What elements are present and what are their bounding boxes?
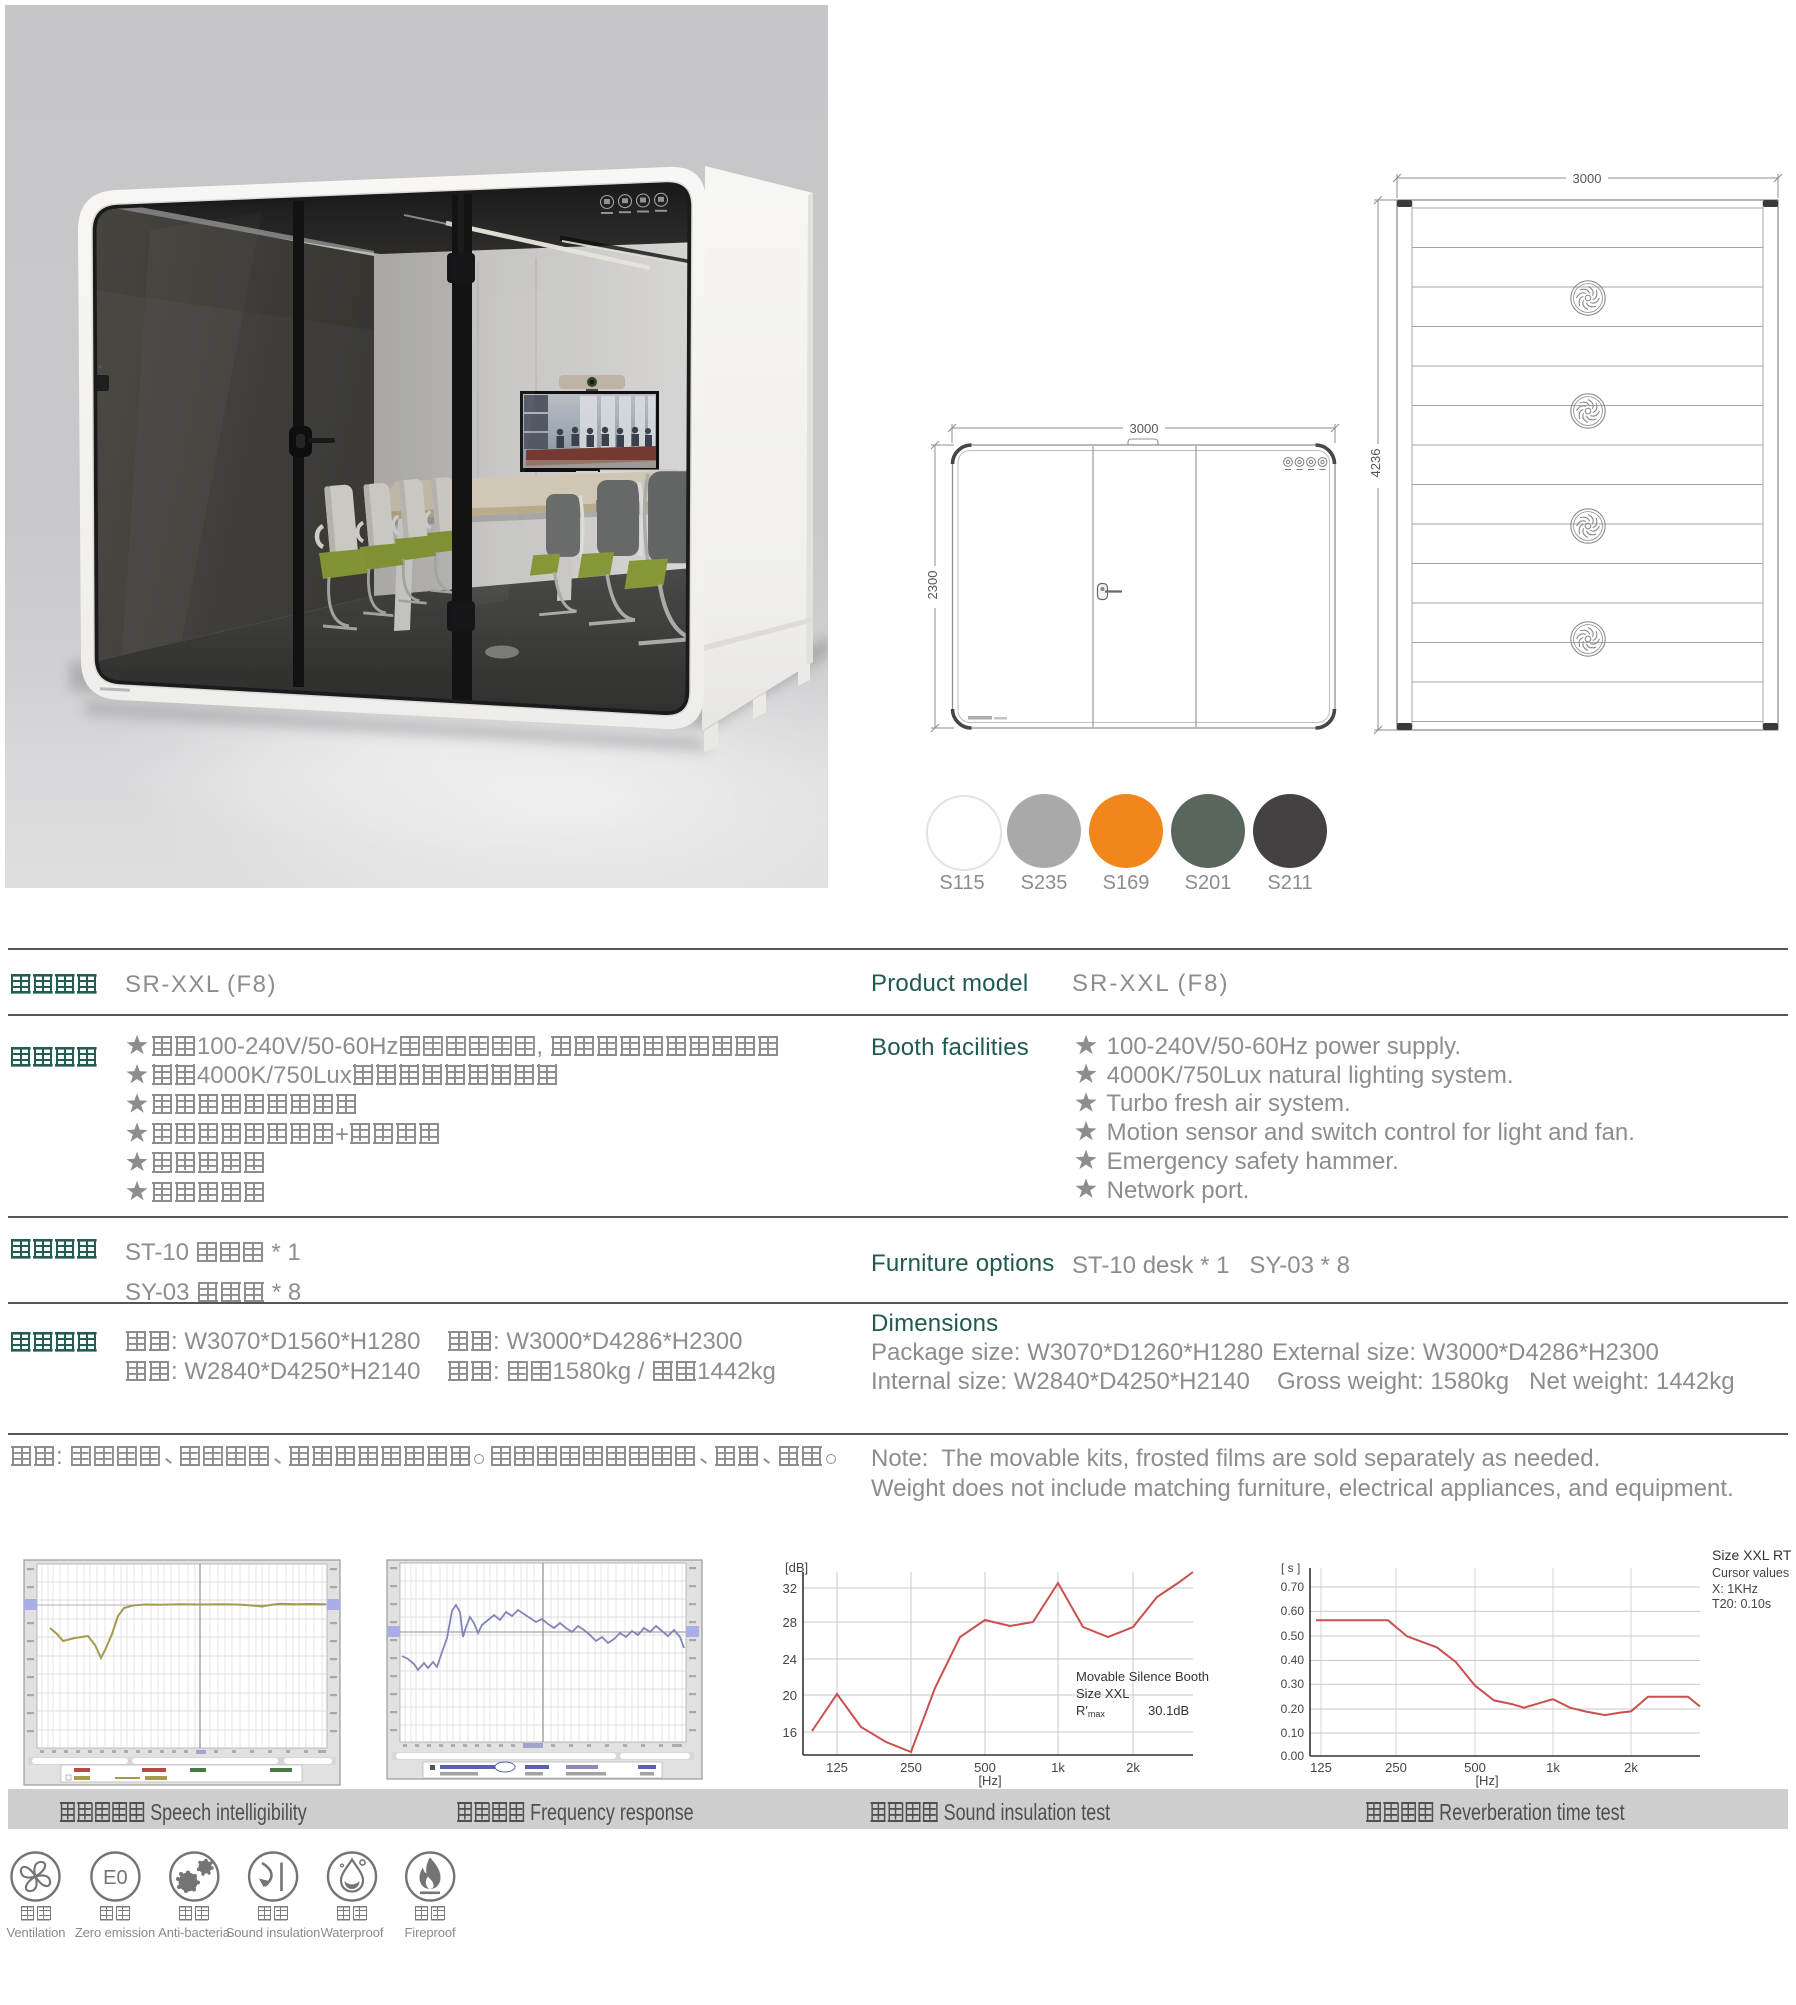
svg-text:4236: 4236 — [1368, 449, 1383, 478]
svg-text:0.70: 0.70 — [1281, 1580, 1305, 1594]
svg-text:125: 125 — [1310, 1760, 1332, 1775]
svg-text:Movable Silence Booth: Movable Silence Booth — [1076, 1669, 1209, 1684]
svg-text:2k: 2k — [1126, 1760, 1140, 1775]
svg-text:125: 125 — [826, 1760, 848, 1775]
svg-text:1k: 1k — [1051, 1760, 1065, 1775]
svg-text:28: 28 — [783, 1615, 797, 1630]
svg-text:32: 32 — [783, 1581, 797, 1596]
svg-text:Size XXL: Size XXL — [1076, 1686, 1129, 1701]
svg-text:1k: 1k — [1546, 1760, 1560, 1775]
svg-text:0.00: 0.00 — [1281, 1749, 1305, 1763]
svg-text:[Hz]: [Hz] — [978, 1773, 1001, 1788]
svg-text:0.50: 0.50 — [1281, 1629, 1305, 1643]
svg-text:20: 20 — [783, 1688, 797, 1703]
svg-text:[Hz]: [Hz] — [1475, 1773, 1498, 1788]
svg-text:[ s ]: [ s ] — [1281, 1561, 1300, 1575]
svg-text:2300: 2300 — [925, 571, 940, 600]
svg-text:0.10: 0.10 — [1281, 1726, 1305, 1740]
svg-text:250: 250 — [900, 1760, 922, 1775]
svg-text:3000: 3000 — [1130, 421, 1159, 436]
svg-text:T20: 0.10s: T20: 0.10s — [1712, 1597, 1771, 1611]
svg-text:3000: 3000 — [1573, 171, 1602, 186]
svg-text:0.40: 0.40 — [1281, 1653, 1305, 1667]
svg-text:2k: 2k — [1624, 1760, 1638, 1775]
svg-text:Size XXL RT: Size XXL RT — [1712, 1547, 1792, 1563]
svg-text:R′max: R′max — [1076, 1703, 1105, 1719]
svg-text:30.1dB: 30.1dB — [1148, 1703, 1189, 1718]
svg-text:250: 250 — [1385, 1760, 1407, 1775]
svg-text:Cursor values: Cursor values — [1712, 1566, 1789, 1580]
svg-text:X: 1KHz: X: 1KHz — [1712, 1582, 1758, 1596]
svg-text:0.20: 0.20 — [1281, 1702, 1305, 1716]
svg-text:0.30: 0.30 — [1281, 1677, 1305, 1691]
svg-text:24: 24 — [783, 1652, 797, 1667]
svg-text:0.60: 0.60 — [1281, 1604, 1305, 1618]
svg-text:E0: E0 — [103, 1867, 127, 1889]
svg-text:16: 16 — [783, 1725, 797, 1740]
svg-text:[dB]: [dB] — [785, 1560, 808, 1575]
